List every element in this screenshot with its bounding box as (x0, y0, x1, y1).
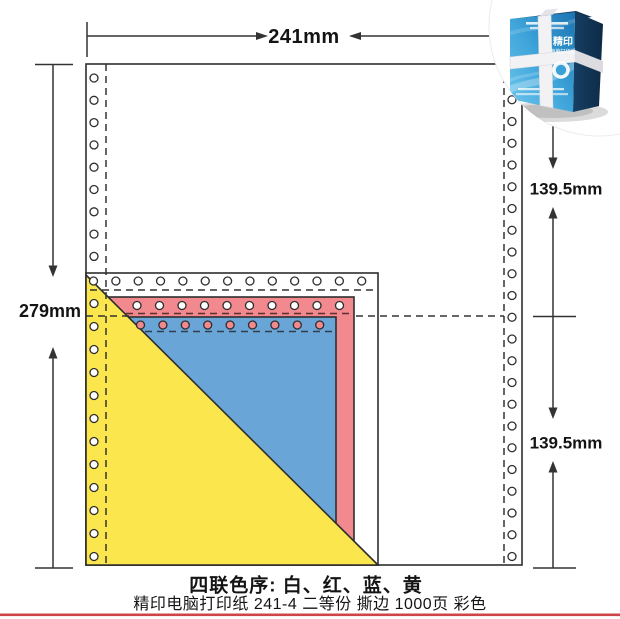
box-brand-text: 精印 (553, 35, 573, 48)
bottom-accent-line (0, 614, 620, 617)
dim-half-top-label: 139.5mm (530, 181, 603, 198)
hole-row-blue-strip (137, 321, 324, 329)
dim-half-top-line (533, 108, 576, 317)
ply-stack (86, 273, 378, 565)
dim-half-bottom-label: 139.5mm (530, 435, 603, 452)
caption-color-order: 四联色序: 白、红、蓝、黄 (189, 577, 423, 596)
diagram-canvas: 精印 电脑打印纸 (0, 0, 620, 619)
dim-width-label: 241mm (268, 27, 339, 47)
caption-spec: 精印电脑打印纸 241-4 二等份 撕边 1000页 彩色 (133, 597, 486, 613)
dim-height-label: 279mm (19, 302, 81, 320)
box-subtitle-text: 电脑打印纸 (550, 48, 575, 55)
product-diagram-image: 精印 电脑打印纸 241mm 279mm 139.5mm 139.5mm 四联色… (0, 0, 620, 619)
hole-column-left-top (90, 74, 98, 260)
